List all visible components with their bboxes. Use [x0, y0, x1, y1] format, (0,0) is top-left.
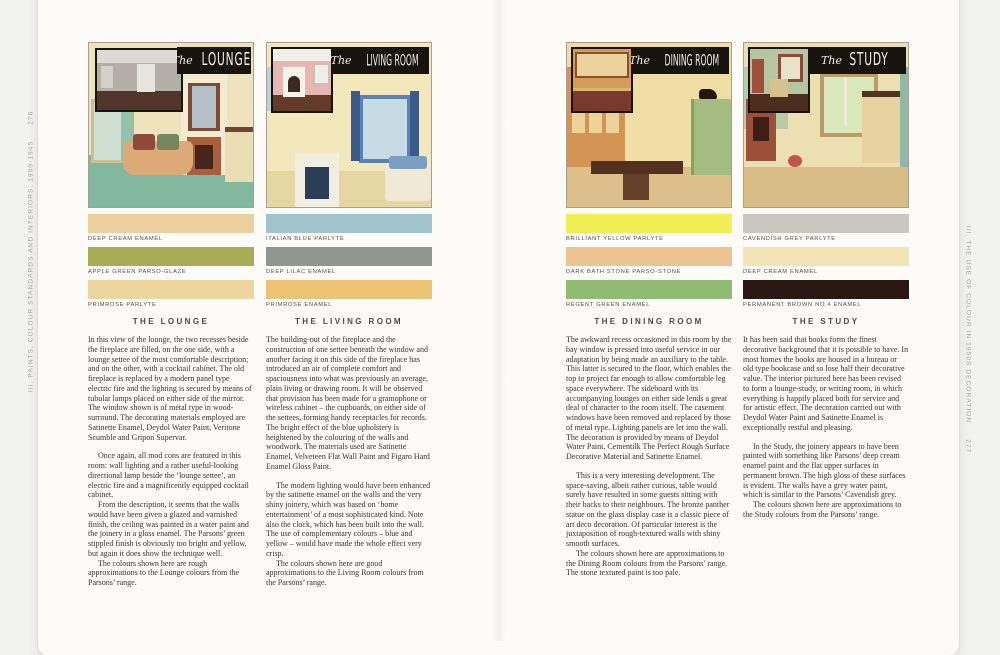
- dining-room-table-pedestal: [623, 174, 649, 200]
- study-column: The STUDY CAVENDISH GREY PARLYTE DEEP CR…: [743, 42, 909, 520]
- lounge-banner: The LOUNGE: [177, 47, 251, 74]
- dining-room-column: The DINING ROOM BRILLIANT YELLOW PARLYTE…: [566, 42, 732, 578]
- inset-window: [778, 54, 803, 82]
- dining-room-table-top: [591, 161, 683, 174]
- living-room-settee-cushion: [389, 156, 427, 169]
- living-room-curtain-left: [351, 91, 360, 161]
- living-room-window: [359, 95, 411, 163]
- lounge-text: In this view of the lounge, the two rece…: [88, 335, 254, 588]
- page-number-right: 277: [965, 439, 972, 453]
- study-paragraph-2: In the Study, the joinery appears to hav…: [743, 442, 909, 501]
- swatch-caption: APPLE GREEN PARSO-GLAZE: [88, 269, 254, 275]
- study-paragraph-1: It has been said that books form the fin…: [743, 335, 909, 433]
- lounge-firebox: [195, 145, 213, 169]
- dining-room-swatches: BRILLIANT YELLOW PARLYTE DARK BATH STONE…: [566, 214, 732, 308]
- lounge-banner-script: The: [177, 54, 193, 67]
- study-swatch-3: PERMANENT BROWN NO.4 ENAMEL: [743, 280, 909, 308]
- dining-room-paragraph-3: The colours shown here are approximation…: [566, 549, 732, 578]
- swatch-caption: DEEP CREAM ENAMEL: [88, 236, 254, 242]
- inset-window: [101, 66, 113, 88]
- inset-fireplace: [752, 59, 764, 93]
- swatch-caption: PRIMROSE ENAMEL: [266, 302, 432, 308]
- swatch-caption: DARK BATH STONE PARSO-STONE: [566, 269, 732, 275]
- study-swatches: CAVENDISH GREY PARLYTE DEEP CREAM ENAMEL…: [743, 214, 909, 308]
- swatch-color-bar: [88, 280, 254, 299]
- swatch-color-bar: [743, 280, 909, 299]
- lounge-swatch-2: APPLE GREEN PARSO-GLAZE: [88, 247, 254, 275]
- lounge-column: The LOUNGE DEEP CREAM ENAMEL APPLE GREEN…: [88, 42, 254, 588]
- lounge-swatch-3: PRIMROSE PARLYTE: [88, 280, 254, 308]
- lounge-cushion-maroon: [133, 134, 155, 150]
- study-firebox: [753, 117, 769, 141]
- dining-room-banner-script: The: [631, 54, 650, 67]
- study-flowers: [788, 155, 802, 167]
- inset-fireplace: [137, 64, 155, 92]
- lounge-paragraph-2: Once again, all mod cons are featured in…: [88, 451, 254, 500]
- inset-floor: [273, 95, 331, 111]
- lounge-paragraph-1: In this view of the lounge, the two rece…: [88, 335, 254, 442]
- living-room-text: The building-out of the fireplace and th…: [266, 335, 432, 588]
- swatch-caption: PRIMROSE PARLYTE: [88, 302, 254, 308]
- living-room-swatch-1: ITALIAN BLUE PARLYTE: [266, 214, 432, 242]
- inset-carpet: [573, 89, 631, 111]
- living-room-banner-script: The: [331, 54, 352, 67]
- lounge-artwork: The LOUNGE: [88, 42, 254, 208]
- dining-room-banner: The DINING ROOM: [631, 47, 729, 74]
- swatch-color-bar: [566, 280, 732, 299]
- living-room-swatches: ITALIAN BLUE PARLYTE DEEP LILAC ENAMEL P…: [266, 214, 432, 308]
- dining-room-paragraph-1: The awkward recess occasioned in this ro…: [566, 335, 732, 462]
- living-room-heading: THE LIVING ROOM: [266, 317, 432, 326]
- study-paragraph-3: The colours shown here are approximation…: [743, 500, 909, 520]
- study-artwork: The STUDY: [743, 42, 909, 208]
- inset-desk: [770, 79, 788, 97]
- dining-room-inset: [571, 47, 633, 113]
- study-banner-title: STUDY: [849, 50, 888, 70]
- study-heading: THE STUDY: [743, 317, 909, 326]
- swatch-caption: DEEP LILAC ENAMEL: [266, 269, 432, 275]
- lounge-paragraph-4: The colours shown here are rough approxi…: [88, 559, 254, 588]
- study-text: It has been said that books form the fin…: [743, 335, 909, 520]
- dining-room-sideboard: [691, 99, 732, 175]
- swatch-color-bar: [88, 214, 254, 233]
- inset-ceiling: [273, 49, 331, 61]
- swatch-color-bar: [266, 280, 432, 299]
- dining-room-swatch-2: DARK BATH STONE PARSO-STONE: [566, 247, 732, 275]
- living-room-paragraph-3: The colours shown here are good approxim…: [266, 559, 432, 588]
- swatch-color-bar: [566, 214, 732, 233]
- swatch-caption: CAVENDISH GREY PARLYTE: [743, 236, 909, 242]
- dining-room-text: The awkward recess occasioned in this ro…: [566, 335, 732, 578]
- living-room-curtain-right: [410, 91, 419, 161]
- living-room-swatch-2: DEEP LILAC ENAMEL: [266, 247, 432, 275]
- swatch-color-bar: [743, 247, 909, 266]
- dining-room-banner-title: DINING ROOM: [665, 51, 720, 70]
- lounge-mirror: [192, 86, 216, 128]
- study-banner-script: The: [821, 54, 842, 67]
- study-teal-band: [900, 67, 908, 167]
- dining-room-heading: THE DINING ROOM: [566, 317, 732, 326]
- study-swatch-1: CAVENDISH GREY PARLYTE: [743, 214, 909, 242]
- lounge-paragraph-3: From the description, it seems that the …: [88, 500, 254, 559]
- lounge-cushion-green: [157, 134, 179, 150]
- study-inset: [748, 47, 810, 113]
- dining-room-artwork: The DINING ROOM: [566, 42, 732, 208]
- swatch-color-bar: [266, 214, 432, 233]
- swatch-caption: ITALIAN BLUE PARLYTE: [266, 236, 432, 242]
- swatch-caption: BRILLIANT YELLOW PARLYTE: [566, 236, 732, 242]
- inset-ceiling: [97, 50, 181, 63]
- swatch-color-bar: [566, 247, 732, 266]
- lounge-swatch-1: DEEP CREAM ENAMEL: [88, 214, 254, 242]
- left-margin-label: III. PAINTS, COLOUR STANDARDS AND INTERI…: [28, 141, 35, 392]
- swatch-color-bar: [266, 247, 432, 266]
- living-room-inset: [271, 47, 333, 113]
- lounge-swatches: DEEP CREAM ENAMEL APPLE GREEN PARSO-GLAZ…: [88, 214, 254, 308]
- living-room-swatch-3: PRIMROSE ENAMEL: [266, 280, 432, 308]
- living-room-firebox: [305, 167, 329, 199]
- living-room-column: The LIVING ROOM ITALIAN BLUE PARLYTE DEE…: [266, 42, 432, 588]
- swatch-color-bar: [743, 214, 909, 233]
- dining-room-swatch-3: REGENT GREEN ENAMEL: [566, 280, 732, 308]
- living-room-artwork: The LIVING ROOM: [266, 42, 432, 208]
- lounge-heading: THE LOUNGE: [88, 317, 254, 326]
- swatch-caption: PERMANENT BROWN NO.4 ENAMEL: [743, 302, 909, 308]
- study-swatch-2: DEEP CREAM ENAMEL: [743, 247, 909, 275]
- inset-window: [313, 63, 330, 85]
- study-banner: The STUDY: [808, 47, 906, 74]
- book-spine: [492, 0, 506, 641]
- lounge-inset-photo: [95, 48, 183, 112]
- living-room-paragraph-2: The modern lighting would have been enha…: [266, 481, 432, 559]
- study-window-mullion: [844, 77, 847, 125]
- inset-fireplace-arch: [288, 76, 300, 92]
- lounge-banner-title: LOUNGE: [201, 50, 251, 70]
- swatch-color-bar: [88, 247, 254, 266]
- dining-room-paragraph-2: This is a very interesting development. …: [566, 471, 732, 549]
- inset-carpet-border: [573, 88, 631, 91]
- swatch-caption: REGENT GREEN ENAMEL: [566, 302, 732, 308]
- inset-window-band: [575, 52, 629, 78]
- left-margin-caption: III. PAINTS, COLOUR STANDARDS AND INTERI…: [28, 82, 35, 422]
- lounge-cocktail-cabinet: [225, 127, 254, 182]
- living-room-banner: The LIVING ROOM: [331, 47, 429, 74]
- living-room-paragraph-1: The building-out of the fireplace and th…: [266, 335, 432, 472]
- page-number-left: 276: [28, 111, 35, 125]
- study-desk: [744, 167, 908, 207]
- dining-room-swatch-1: BRILLIANT YELLOW PARLYTE: [566, 214, 732, 242]
- swatch-caption: DEEP CREAM ENAMEL: [743, 269, 909, 275]
- right-margin-caption: III. THE USE OF COLOUR IN 1950S DECORATI…: [965, 170, 972, 510]
- living-room-banner-title: LIVING ROOM: [366, 51, 418, 70]
- right-margin-label: III. THE USE OF COLOUR IN 1950S DECORATI…: [965, 226, 972, 423]
- dining-room-panther-statue: [699, 89, 717, 99]
- inset-floor: [97, 91, 181, 110]
